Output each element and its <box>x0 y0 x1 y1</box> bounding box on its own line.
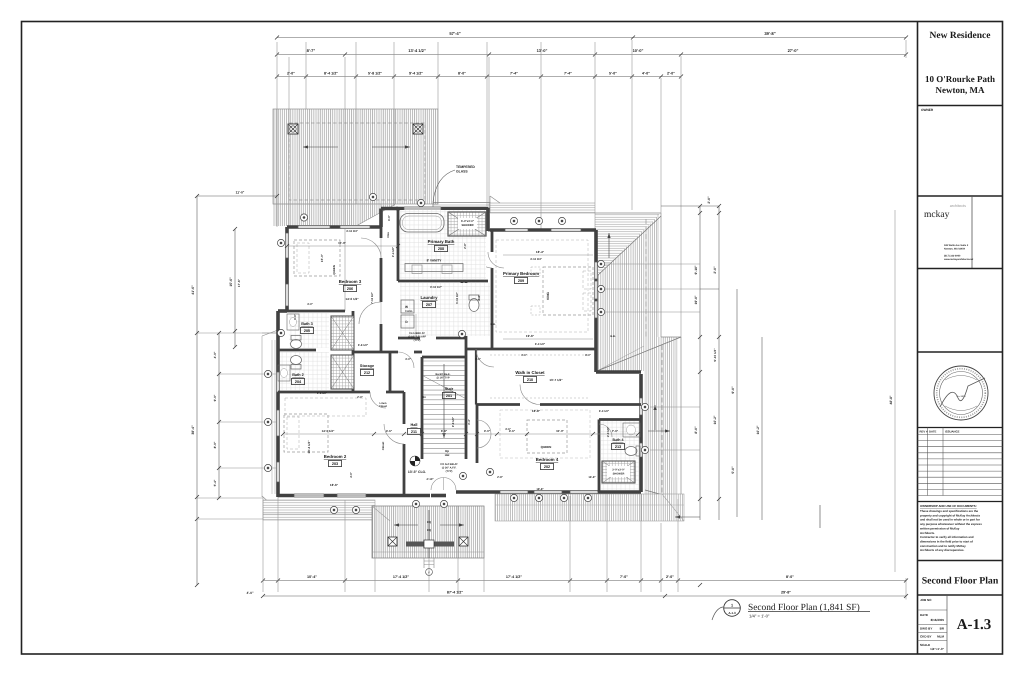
svg-text:38'-4": 38'-4" <box>191 425 195 435</box>
svg-text:7'-4": 7'-4" <box>564 72 572 76</box>
svg-text:4'-0": 4'-0" <box>350 471 353 478</box>
svg-text:2'-8": 2'-8" <box>464 242 467 249</box>
svg-text:205: 205 <box>304 329 310 333</box>
svg-text:202: 202 <box>544 465 550 469</box>
svg-text:15'-0": 15'-0" <box>338 241 346 245</box>
svg-text:5'-10 1/2": 5'-10 1/2" <box>456 291 459 304</box>
svg-text:3'-4": 3'-4" <box>468 418 471 425</box>
svg-text:Bath 4: Bath 4 <box>613 438 624 442</box>
svg-text:19'-6": 19'-6" <box>526 334 535 338</box>
svg-text:39'-8": 39'-8" <box>764 31 775 36</box>
svg-text:5'-0 1/2": 5'-0 1/2" <box>535 343 546 346</box>
svg-text:1/4"=1'-0": 1/4"=1'-0" <box>930 647 944 651</box>
svg-text:18'-8": 18'-8" <box>536 488 544 491</box>
svg-text:10'-7 1/2": 10'-7 1/2" <box>549 378 563 382</box>
svg-text:2'-0": 2'-0" <box>667 72 675 76</box>
svg-text:15'-6": 15'-6" <box>229 277 233 287</box>
svg-text:SHOWER: SHOWER <box>613 473 625 476</box>
svg-text:213: 213 <box>615 445 621 449</box>
svg-text:57'-4": 57'-4" <box>449 31 460 36</box>
svg-text:17'-4 1/2": 17'-4 1/2" <box>506 575 522 579</box>
svg-text:210: 210 <box>527 378 533 382</box>
svg-text:4'-0": 4'-0" <box>642 72 650 76</box>
svg-text:16'-2": 16'-2" <box>756 425 760 434</box>
svg-text:GLASS: GLASS <box>456 170 468 174</box>
svg-text:10'-0": 10'-0" <box>556 429 564 433</box>
svg-text:11'-0": 11'-0" <box>236 191 245 195</box>
svg-text:4'-6": 4'-6" <box>505 428 512 431</box>
svg-text:C.M.D.: C.M.D. <box>405 310 413 313</box>
svg-text:Storage: Storage <box>360 364 374 368</box>
svg-text:2'-0": 2'-0" <box>713 266 717 274</box>
svg-text:209: 209 <box>518 279 524 283</box>
svg-text:204: 204 <box>295 380 302 384</box>
svg-text:QUEEN: QUEEN <box>333 265 336 275</box>
svg-text:4'-0": 4'-0" <box>405 358 412 361</box>
svg-text:29'-8": 29'-8" <box>781 591 791 595</box>
svg-text:9'-0": 9'-0" <box>213 394 217 401</box>
svg-text:7'-0": 7'-0" <box>620 575 628 579</box>
svg-text:17'-4 1/2": 17'-4 1/2" <box>393 575 409 579</box>
svg-text:8'-0": 8'-0" <box>786 575 794 579</box>
svg-text:JOB NO: JOB NO <box>920 598 932 602</box>
svg-text:4'-0": 4'-0" <box>213 351 217 358</box>
svg-text:REV #: REV # <box>920 430 929 434</box>
svg-text:15'-0": 15'-0" <box>320 253 324 262</box>
svg-text:9'-0": 9'-0" <box>731 386 735 394</box>
svg-text:Architects of any discrepancie: Architects of any discrepancies. <box>920 548 965 552</box>
svg-text:10 O'Rourke Path: 10 O'Rourke Path <box>925 74 995 84</box>
svg-text:3'-4 1/2": 3'-4 1/2" <box>392 246 395 257</box>
svg-text:206: 206 <box>347 287 353 291</box>
svg-text:3'-6": 3'-6" <box>521 354 528 357</box>
svg-text:7'-10 1/2": 7'-10 1/2" <box>371 291 374 304</box>
svg-text:3'-0"x3'-0": 3'-0"x3'-0" <box>612 469 625 472</box>
svg-text:10'-4": 10'-4" <box>307 575 317 579</box>
svg-text:2'-0": 2'-0" <box>287 72 295 76</box>
svg-text:(TYP): (TYP) <box>446 470 453 473</box>
svg-text:ISSUANCE: ISSUANCE <box>945 430 960 434</box>
svg-text:14'-0 1/2": 14'-0 1/2" <box>345 297 359 301</box>
svg-text:8'-0": 8'-0" <box>694 426 698 434</box>
svg-text:8/16/2005: 8/16/2005 <box>931 618 945 622</box>
svg-text:3'-0": 3'-0" <box>475 358 482 361</box>
svg-text:Clos: Clos <box>387 232 390 238</box>
svg-text:4'-0": 4'-0" <box>307 303 314 306</box>
svg-text:208: 208 <box>438 247 444 251</box>
svg-text:A-1.3: A-1.3 <box>728 611 736 615</box>
svg-text:OWNER: OWNER <box>921 108 934 112</box>
svg-text:3'-0": 3'-0" <box>484 429 491 433</box>
svg-text:SHOWER: SHOWER <box>461 224 473 227</box>
svg-text:4'-4": 4'-4" <box>478 294 481 301</box>
svg-text:Bath 2: Bath 2 <box>292 373 304 377</box>
svg-text:9'-10": 9'-10" <box>694 265 698 274</box>
svg-text:18'-6": 18'-6" <box>330 483 339 487</box>
svg-text:16R: 16R <box>445 454 450 457</box>
svg-text:mckay: mckay <box>924 210 950 220</box>
svg-text:9'-8 1/2": 9'-8 1/2" <box>452 416 455 427</box>
svg-text:201: 201 <box>446 394 452 398</box>
svg-text:TEMPERED: TEMPERED <box>456 165 475 169</box>
svg-text:5'-0"x3'-0": 5'-0"x3'-0" <box>461 220 475 223</box>
svg-text:4'-0 1/2": 4'-0 1/2" <box>607 426 610 437</box>
svg-text:DATE: DATE <box>929 430 937 434</box>
svg-text:18'-4": 18'-4" <box>536 250 545 254</box>
svg-text:10'-0": 10'-0" <box>633 48 644 53</box>
svg-text:16'-8": 16'-8" <box>588 476 596 479</box>
svg-text:Laundry: Laundry <box>421 295 439 300</box>
svg-text:Bath 3: Bath 3 <box>301 322 313 326</box>
svg-text:8'-4 1/2": 8'-4 1/2" <box>324 72 338 76</box>
svg-text:13'-0": 13'-0" <box>537 48 548 53</box>
svg-text:8'-0": 8'-0" <box>458 72 466 76</box>
svg-text:5'-0": 5'-0" <box>731 466 735 474</box>
svg-text:9'-10 1/2": 9'-10 1/2" <box>430 286 443 289</box>
svg-text:A-1.3: A-1.3 <box>957 617 992 633</box>
svg-text:6'-8": 6'-8" <box>441 429 448 433</box>
svg-text:www.mckayarchitects.net: www.mckayarchitects.net <box>944 258 973 261</box>
svg-text:No. 9550: No. 9550 <box>957 395 967 398</box>
svg-text:MLM: MLM <box>937 635 944 639</box>
svg-text:B.B.: B.B. <box>490 323 495 326</box>
svg-text:SCALE: SCALE <box>920 643 930 647</box>
svg-text:Bedroom 4: Bedroom 4 <box>536 457 559 462</box>
svg-text:212: 212 <box>364 371 370 375</box>
svg-text:18'-8": 18'-8" <box>532 409 541 413</box>
svg-text:6'-0": 6'-0" <box>388 214 391 221</box>
svg-text:Dn: Dn <box>422 395 426 399</box>
svg-text:19'-0": 19'-0" <box>694 295 698 304</box>
svg-text:8'-0": 8'-0" <box>213 441 217 448</box>
svg-text:5'-8 1/2": 5'-8 1/2" <box>358 344 369 347</box>
svg-text:architects: architects <box>950 204 966 208</box>
svg-text:203: 203 <box>332 462 338 466</box>
svg-text:B.B.: B.B. <box>610 335 615 338</box>
svg-text:5'-0": 5'-0" <box>609 72 617 76</box>
svg-text:1/4" = 1'-0": 1/4" = 1'-0" <box>749 614 770 619</box>
svg-text:Primary Bedroom: Primary Bedroom <box>503 271 539 276</box>
svg-text:Second Floor Plan: Second Floor Plan <box>922 576 999 587</box>
svg-text:2'-8": 2'-8" <box>497 476 504 479</box>
svg-text:8'-0": 8'-0" <box>585 354 592 357</box>
svg-text:9'-10 1/2": 9'-10 1/2" <box>713 348 717 362</box>
svg-text:Closet: Closet <box>379 405 387 408</box>
svg-text:Bedroom 3: Bedroom 3 <box>339 279 362 284</box>
svg-text:Walk in Closet: Walk in Closet <box>515 370 545 375</box>
svg-text:19'-4 1/2": 19'-4 1/2" <box>307 440 311 454</box>
svg-text:5'-8 1/2": 5'-8 1/2" <box>368 72 382 76</box>
svg-text:41'-6": 41'-6" <box>191 285 195 295</box>
svg-text:7'-4": 7'-4" <box>510 72 518 76</box>
svg-text:Bedroom 2: Bedroom 2 <box>324 454 347 459</box>
svg-text:1: 1 <box>731 604 733 608</box>
svg-text:OWNERSHIP AND USE OF DOCUMENTS: OWNERSHIP AND USE OF DOCUMENTS: <box>920 504 977 508</box>
svg-text:16'-2": 16'-2" <box>713 415 717 424</box>
svg-text:17'-6": 17'-6" <box>237 278 241 287</box>
svg-text:@ 16" TYP: @ 16" TYP <box>436 377 449 380</box>
svg-text:DWG BY: DWG BY <box>920 627 932 631</box>
svg-text:87'-4 1/2": 87'-4 1/2" <box>447 591 463 595</box>
svg-text:9'-4 1/2": 9'-4 1/2" <box>409 72 423 76</box>
svg-text:13'-4 1/2": 13'-4 1/2" <box>408 48 426 53</box>
svg-text:Hall: Hall <box>411 423 418 427</box>
svg-text:2'-0": 2'-0" <box>707 196 711 204</box>
svg-text:4'-0": 4'-0" <box>246 591 254 595</box>
svg-text:(TYP): (TYP) <box>414 339 421 342</box>
svg-text:211: 211 <box>411 430 417 434</box>
svg-text:CKD BY: CKD BY <box>920 635 932 639</box>
svg-text:Closet: Closet <box>381 442 385 451</box>
svg-text:Newton, MA: Newton, MA <box>936 85 985 95</box>
svg-text:4'-10 3/4": 4'-10 3/4" <box>346 230 359 233</box>
svg-text:7'-0": 7'-0" <box>612 429 619 433</box>
svg-text:48'-8": 48'-8" <box>889 395 893 404</box>
svg-text:13'-3" CLG.: 13'-3" CLG. <box>408 470 426 474</box>
svg-text:New Residence: New Residence <box>930 31 991 41</box>
svg-text:Newton, MA 02459: Newton, MA 02459 <box>944 248 966 251</box>
svg-text:Stair: Stair <box>445 387 454 391</box>
svg-text:27'-0": 27'-0" <box>788 48 799 53</box>
svg-text:4'-6": 4'-6" <box>386 429 393 433</box>
svg-text:207: 207 <box>426 303 432 307</box>
svg-text:2'-0": 2'-0" <box>357 396 364 399</box>
svg-text:5'-0 1/2": 5'-0 1/2" <box>599 410 610 413</box>
svg-text:KING: KING <box>546 291 550 299</box>
svg-text:5'-4": 5'-4" <box>213 479 217 486</box>
svg-text:Up: Up <box>445 449 449 453</box>
svg-text:Primary Bath: Primary Bath <box>428 239 455 244</box>
svg-text:2'-0": 2'-0" <box>666 575 674 579</box>
svg-text:8'-7": 8'-7" <box>307 48 316 53</box>
svg-text:4'-10 3/4": 4'-10 3/4" <box>530 258 543 261</box>
svg-text:5'-0": 5'-0" <box>294 313 297 320</box>
svg-text:QUEEN: QUEEN <box>541 445 552 449</box>
svg-text:14'-0 1/2": 14'-0 1/2" <box>322 429 335 433</box>
svg-text:4'-10": 4'-10" <box>426 478 434 481</box>
svg-text:8' VANITY: 8' VANITY <box>427 259 443 263</box>
svg-text:W: W <box>405 305 408 309</box>
svg-text:DATE: DATE <box>920 613 928 617</box>
svg-text:6'-8 1/2": 6'-8 1/2" <box>317 392 328 395</box>
